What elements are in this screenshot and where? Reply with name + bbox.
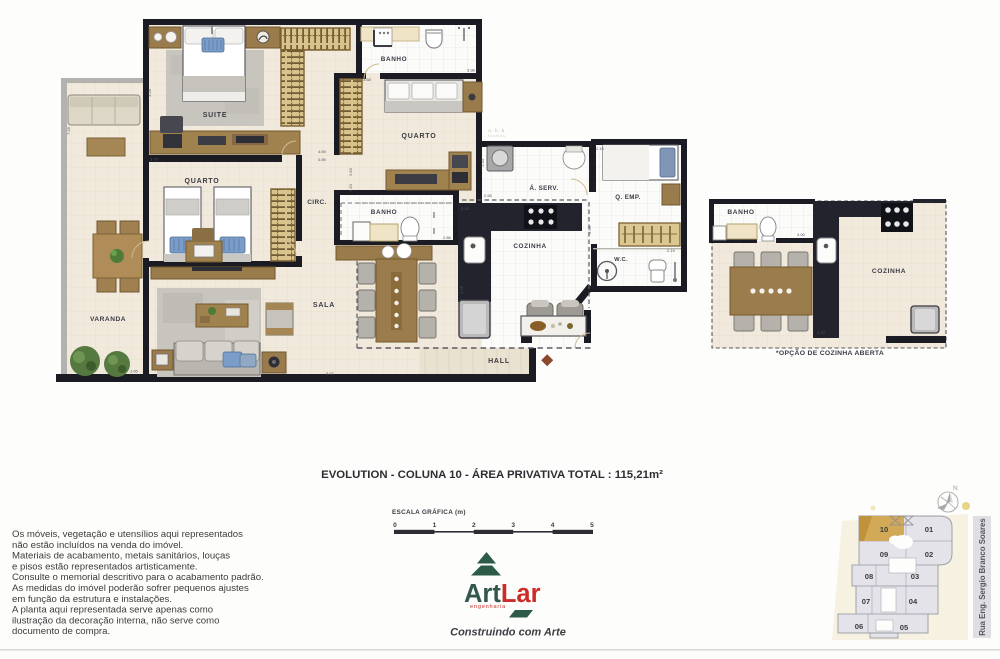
svg-text:1.65: 1.65 [130,369,139,374]
svg-text:BANHO: BANHO [371,209,397,216]
svg-text:1: 1 [433,522,437,529]
svg-text:3.28: 3.28 [147,88,152,97]
svg-text:As medidas do imóvel poderão s: As medidas do imóvel poderão sofrer pequ… [12,583,249,594]
svg-text:06: 06 [855,622,863,631]
svg-text:Os móveis, vegetação e utensíl: Os móveis, vegetação e utensílios aqui r… [12,529,243,540]
svg-text:3.70: 3.70 [150,157,159,162]
svg-text:n.h.b: n.h.b [488,128,505,133]
svg-text:2.60: 2.60 [348,167,353,176]
svg-text:N: N [953,485,958,492]
svg-text:SALA: SALA [313,302,335,309]
svg-text:COZINHA: COZINHA [872,268,906,275]
svg-text:e pisos estão representados ar: e pisos estão representados artisticamen… [12,561,198,572]
svg-text:Q. EMP.: Q. EMP. [615,194,640,201]
svg-text:QUARTO: QUARTO [401,133,436,140]
svg-text:CIRC.: CIRC. [307,199,326,206]
svg-text:1.20: 1.20 [348,183,353,192]
svg-text:QUARTO: QUARTO [184,178,219,185]
svg-text:ilustração da decoração intern: ilustração da decoração interna, não ser… [12,615,219,626]
svg-text:1.30: 1.30 [480,158,485,167]
svg-text:3.68: 3.68 [363,77,372,82]
svg-text:0: 0 [393,522,397,529]
svg-text:2.19: 2.19 [667,248,676,253]
svg-text:não estão incluídos na venda d: não estão incluídos na venda do imóvel. [12,540,183,551]
svg-text:em função da estrutura e insta: em função da estrutura e instalações. [12,594,172,605]
svg-text:3.00: 3.00 [797,232,806,237]
svg-text:Consulte o memorial descritivo: Consulte o memorial descritivo para o ac… [12,572,264,583]
svg-text:08: 08 [865,572,873,581]
svg-text:7.28: 7.28 [66,126,71,135]
svg-text:01: 01 [925,525,934,534]
svg-text:04: 04 [909,597,918,606]
svg-text:BANHO: BANHO [727,209,754,216]
svg-text:3.15: 3.15 [461,206,470,211]
svg-text:10: 10 [880,525,888,534]
svg-text:*OPÇÃO DE COZINHA ABERTA: *OPÇÃO DE COZINHA ABERTA [776,348,884,357]
svg-text:3: 3 [511,522,515,529]
svg-text:VARANDA: VARANDA [90,316,126,323]
svg-text:studios: studios [488,134,506,138]
svg-text:ESCALA GRÁFICA (m): ESCALA GRÁFICA (m) [392,507,466,516]
svg-text:4: 4 [551,522,555,529]
svg-text:BANHO: BANHO [381,56,407,63]
svg-text:SUITE: SUITE [203,112,228,119]
svg-text:2: 2 [472,522,476,529]
svg-text:8.67: 8.67 [326,371,335,376]
svg-text:EVOLUTION - COLUNA 10 - ÁREA P: EVOLUTION - COLUNA 10 - ÁREA PRIVATIVA T… [321,468,663,481]
svg-text:5: 5 [590,522,594,529]
svg-text:2.53: 2.53 [587,225,592,234]
svg-text:03: 03 [911,572,919,581]
svg-text:Á. SERV.: Á. SERV. [530,185,559,192]
svg-text:2.55: 2.55 [484,193,493,198]
svg-text:engenharia: engenharia [470,604,506,610]
svg-text:2.88: 2.88 [443,235,452,240]
svg-text:HALL: HALL [488,358,510,365]
svg-text:02: 02 [925,550,933,559]
svg-text:3.25: 3.25 [459,285,464,294]
svg-text:W.C.: W.C. [614,257,628,263]
svg-text:0.89: 0.89 [318,157,327,162]
svg-text:Construindo com Arte: Construindo com Arte [450,627,566,639]
svg-text:4.69: 4.69 [318,149,327,154]
svg-text:Rua Eng. Sergio Branco Soares: Rua Eng. Sergio Branco Soares [978,518,987,636]
svg-text:09: 09 [880,550,888,559]
svg-text:A planta aqui representada ser: A planta aqui representada serve apenas … [12,605,213,616]
svg-text:05: 05 [900,623,909,632]
svg-text:07: 07 [862,597,870,606]
svg-text:Materiais de acabamento, metai: Materiais de acabamento, metais sanitári… [12,551,230,562]
svg-text:2.19: 2.19 [596,146,605,151]
svg-text:3.10: 3.10 [817,330,826,335]
svg-text:documento de compra.: documento de compra. [12,626,110,637]
svg-text:COZINHA: COZINHA [513,243,546,250]
svg-text:3.98: 3.98 [467,68,476,73]
